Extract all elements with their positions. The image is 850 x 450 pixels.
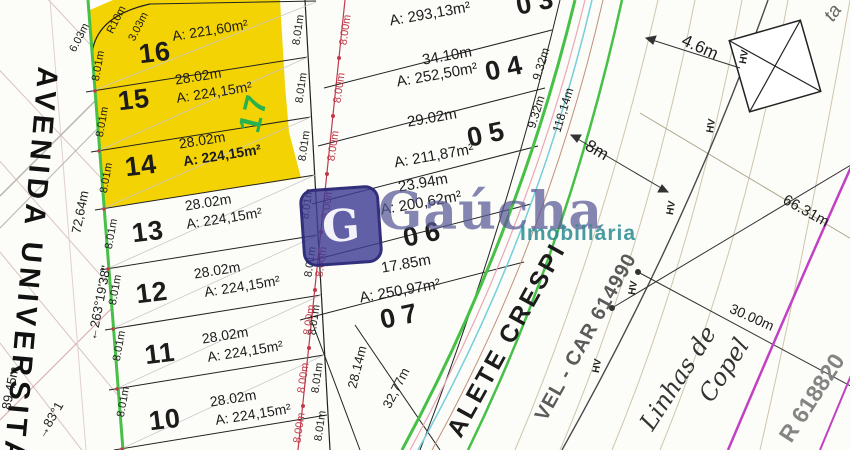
survey-map: AVENIDA UNIVERSITÁRIA 89,45m →83°1 72,64… (0, 0, 850, 450)
lot-14-number: 14 (123, 151, 158, 182)
lot-12-number: 12 (134, 278, 169, 309)
lot-17-number: 17 (233, 91, 272, 136)
lot-11-number: 11 (143, 339, 177, 370)
brand-logo-icon: G (298, 184, 383, 267)
transmission-tower-icon (729, 20, 821, 112)
lot-13-number: 13 (130, 217, 165, 248)
brand-subtitle: Imobiliária (520, 222, 636, 246)
lot-10-number: 10 (147, 405, 182, 436)
lot-16-number: 16 (137, 38, 172, 69)
lot-15-number: 15 (116, 85, 151, 116)
brand-logo-letter: G (320, 199, 361, 252)
